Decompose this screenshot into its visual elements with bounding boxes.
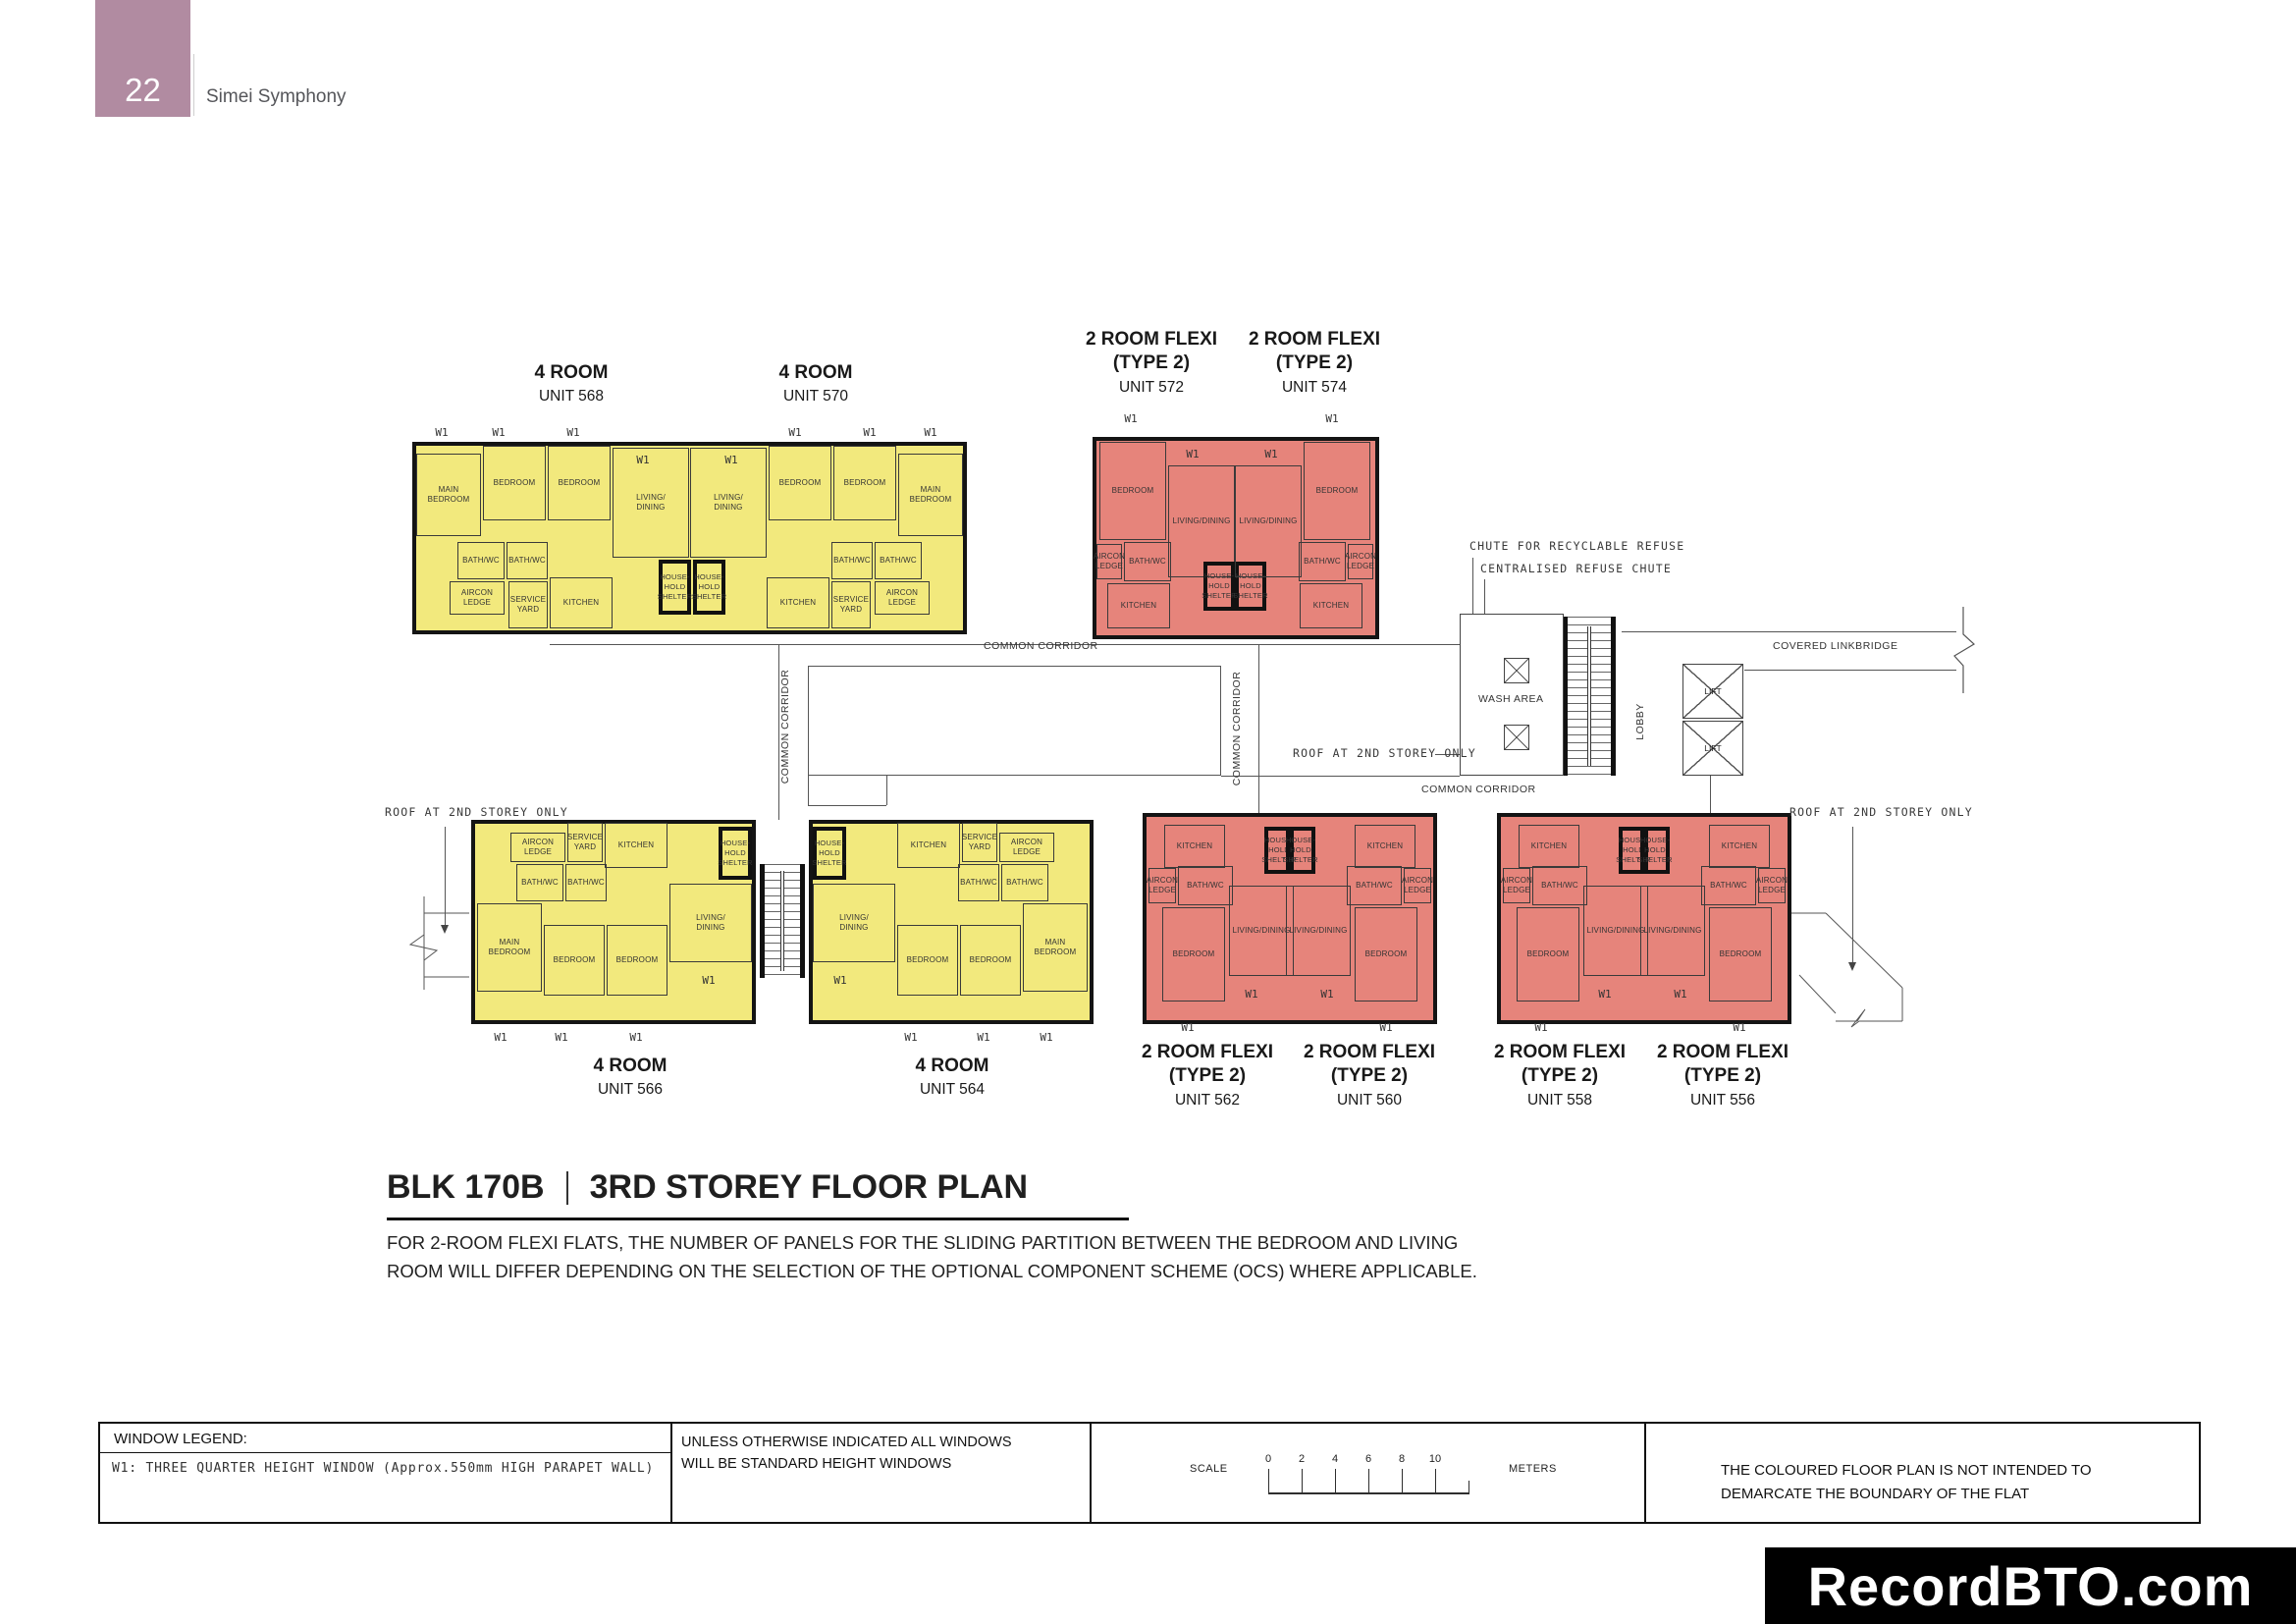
w1-window-label: W1	[555, 1031, 567, 1044]
room-label: BATH/WC	[1710, 881, 1747, 891]
room-label: BEDROOM	[779, 478, 822, 488]
title-divider	[566, 1171, 568, 1205]
room-kitchen: KITCHEN	[1355, 825, 1415, 868]
room-bedroom: BEDROOM	[1099, 442, 1166, 540]
chute-recyclable-label: CHUTE FOR RECYCLABLE REFUSE	[1469, 539, 1684, 553]
household-shelter: HOUSE-HOLDSHELTER	[659, 560, 691, 615]
room-bath-wc: BATH/WC	[457, 542, 505, 579]
title-rule	[387, 1218, 1129, 1220]
room-label: SERVICE	[510, 595, 546, 605]
w1-window-label: W1	[435, 426, 448, 439]
room-label: DINING	[696, 923, 724, 933]
room-label: LEDGE	[1758, 886, 1786, 895]
room-bedroom: BEDROOM	[483, 446, 546, 520]
room-label: BEDROOM	[1365, 949, 1408, 959]
room-label: SERVICE	[567, 833, 603, 842]
room-label: SHELTER	[1201, 591, 1236, 601]
window-legend-title: WINDOW LEGEND:	[114, 1431, 247, 1447]
room-living-dining: LIVING/DINING	[1229, 886, 1294, 976]
room-label: BATH/WC	[521, 878, 559, 888]
unit-number: UNIT 558	[1494, 1092, 1626, 1110]
room-label: HOUSE-	[694, 572, 723, 582]
stair-rail	[780, 871, 784, 971]
unit-type: (TYPE 2)	[1142, 1064, 1273, 1088]
unit-number: UNIT 562	[1142, 1092, 1273, 1110]
common-corridor-left: COMMON CORRIDOR	[779, 670, 791, 785]
room-label: KITCHEN	[618, 840, 655, 850]
room-label: LIVING/DINING	[1232, 926, 1290, 936]
w1-window-label: W1	[788, 426, 801, 439]
room-label: AIRCON	[1501, 876, 1532, 886]
unit-label-568: 4 ROOMUNIT 568	[535, 361, 609, 406]
scale-label: SCALE	[1190, 1463, 1228, 1475]
room-bedroom: BEDROOM	[960, 925, 1021, 996]
room-label: SHELTER	[1637, 855, 1672, 865]
unit-type: 2 ROOM FLEXI	[1657, 1041, 1789, 1064]
room-label: BEDROOM	[844, 478, 886, 488]
scale-tick	[1368, 1469, 1369, 1492]
room-living-dining: LIVING/DINING	[613, 448, 689, 558]
room-main-bedroom: MAINBEDROOM	[898, 454, 963, 536]
w1-window-label: W1	[1320, 988, 1333, 1001]
w1-window-label: W1	[1186, 448, 1199, 460]
room-label: HOLD	[1290, 845, 1311, 855]
room-label: KITCHEN	[780, 598, 817, 608]
common-corridor-bottom: COMMON CORRIDOR	[1421, 784, 1536, 795]
room-kitchen: KITCHEN	[767, 577, 829, 628]
unit-number: UNIT 560	[1304, 1092, 1435, 1110]
room-label: HOUSE-	[721, 839, 750, 848]
room-aircon-ledge: AIRCONLEDGE	[450, 581, 505, 615]
legend-cell-divider	[670, 1424, 672, 1522]
room-bath-wc: BATH/WC	[875, 542, 922, 579]
unit-label-558: 2 ROOM FLEXI(TYPE 2)UNIT 558	[1494, 1041, 1626, 1110]
room-label: LIVING/DINING	[1643, 926, 1701, 936]
floor-plan: MAINBEDROOMBEDROOMBEDROOMLIVING/DININGBA…	[0, 0, 2296, 1624]
wash-area: WASH AREA	[1478, 693, 1544, 705]
room-aircon-ledge: AIRCONLEDGE	[999, 833, 1054, 862]
room-label: SHELTER	[718, 858, 752, 868]
room-aircon-ledge: AIRCONLEDGE	[510, 833, 565, 862]
room-label: SHELTER	[812, 858, 846, 868]
unit-number: UNIT 570	[779, 388, 853, 406]
room-kitchen: KITCHEN	[1107, 583, 1170, 628]
staircase	[760, 864, 805, 978]
unit-number: UNIT 572	[1086, 379, 1217, 397]
plan-title: BLK 170B 3RD STOREY FLOOR PLAN	[387, 1168, 1028, 1207]
unit-label-560: 2 ROOM FLEXI(TYPE 2)UNIT 560	[1304, 1041, 1435, 1110]
staircase	[1563, 617, 1616, 776]
roof-2nd-storey-mid: ROOF AT 2ND STOREY ONLY	[1293, 746, 1476, 760]
room-label: YARD	[574, 842, 596, 852]
room-label: LIVING/DINING	[1289, 926, 1347, 936]
room-label: BEDROOM	[970, 955, 1012, 965]
courtyard-notch	[808, 776, 809, 805]
room-bath-wc: BATH/WC	[507, 542, 548, 579]
w1-window-label: W1	[629, 1031, 642, 1044]
w1-window-label: W1	[1379, 1021, 1392, 1034]
w1-window-label: W1	[977, 1031, 989, 1044]
covered-linkbridge: COVERED LINKBRIDGE	[1773, 640, 1897, 652]
room-label: LIVING/DINING	[1239, 516, 1297, 526]
linkbridge-line	[1622, 631, 1956, 632]
ocs-note-line2: ROOM WILL DIFFER DEPENDING ON THE SELECT…	[387, 1258, 1477, 1286]
room-bath-wc: BATH/WC	[1347, 866, 1402, 905]
room-service-yard: SERVICEYARD	[831, 581, 871, 628]
room-bath-wc: BATH/WC	[1299, 542, 1346, 581]
unit-type: 2 ROOM FLEXI	[1494, 1041, 1626, 1064]
lift-label: LIFT	[1704, 743, 1721, 753]
scale-tick	[1468, 1481, 1469, 1492]
lift-box: LIFT	[1682, 721, 1743, 776]
room-label: HOLD	[819, 848, 840, 858]
room-bedroom: BEDROOM	[897, 925, 958, 996]
watermark-banner: RecordBTO.com	[1765, 1547, 2296, 1624]
lift-box: LIFT	[1682, 664, 1743, 719]
unit-type: (TYPE 2)	[1249, 352, 1380, 375]
unit-number: UNIT 556	[1657, 1092, 1789, 1110]
legend-cell-divider	[1090, 1424, 1092, 1522]
room-aircon-ledge: AIRCONLEDGE	[1503, 868, 1530, 903]
room-living-dining: LIVING/DINING	[1286, 886, 1351, 976]
courtyard-outline	[808, 666, 1221, 776]
w1-window-label: W1	[1534, 1021, 1547, 1034]
room-label: BEDROOM	[1035, 947, 1077, 957]
w1-window-label: W1	[863, 426, 876, 439]
room-main-bedroom: MAINBEDROOM	[416, 454, 481, 536]
refuse-chute-box	[1504, 725, 1529, 750]
unit-type: (TYPE 2)	[1304, 1064, 1435, 1088]
room-label: LIVING/DINING	[1586, 926, 1644, 936]
room-label: BEDROOM	[1316, 486, 1359, 496]
room-label: BATH/WC	[1187, 881, 1224, 891]
room-label: LEDGE	[463, 598, 491, 608]
room-label: AIRCON	[461, 588, 493, 598]
room-label: BATH/WC	[1006, 878, 1043, 888]
room-label: YARD	[969, 842, 990, 852]
room-label: LIVING/	[696, 913, 725, 923]
w1-window-label: W1	[1733, 1021, 1745, 1034]
room-label: KITCHEN	[1313, 601, 1350, 611]
scale-unit-label: METERS	[1509, 1463, 1557, 1475]
room-label: HOLD	[665, 582, 686, 592]
unit-type: 2 ROOM FLEXI	[1249, 328, 1380, 352]
unit-label-556: 2 ROOM FLEXI(TYPE 2)UNIT 556	[1657, 1041, 1789, 1110]
scale-tick-number: 10	[1429, 1453, 1441, 1465]
room-label: HOUSE-	[815, 839, 844, 848]
w1-window-label: W1	[1124, 412, 1137, 425]
windows-note-line2: WILL BE STANDARD HEIGHT WINDOWS	[681, 1453, 1012, 1475]
room-main-bedroom: MAINBEDROOM	[477, 903, 542, 992]
room-aircon-ledge: AIRCONLEDGE	[875, 581, 930, 615]
room-label: LIVING/	[839, 913, 869, 923]
room-aircon-ledge: AIRCONLEDGE	[1096, 544, 1122, 579]
unit-type: 2 ROOM FLEXI	[1304, 1041, 1435, 1064]
room-living-dining: LIVING/DINING	[669, 884, 752, 962]
w1-window-label: W1	[1040, 1031, 1052, 1044]
room-label: BATH/WC	[960, 878, 997, 888]
room-label: HOUSE-	[1286, 836, 1315, 845]
household-shelter: HOUSE-HOLDSHELTER	[693, 560, 725, 615]
room-label: BEDROOM	[559, 478, 601, 488]
roof-2nd-storey-right: ROOF AT 2ND STOREY ONLY	[1789, 805, 1973, 819]
w1-window-label: W1	[636, 454, 649, 466]
room-label: MAIN	[500, 938, 520, 947]
unit-label-570: 4 ROOMUNIT 570	[779, 361, 853, 406]
room-label: KITCHEN	[1177, 841, 1213, 851]
scale-tick-number: 8	[1399, 1453, 1405, 1465]
room-label: LEDGE	[524, 847, 552, 857]
legend-title-rule	[100, 1452, 670, 1453]
corridor-line	[1221, 776, 1460, 777]
room-service-yard: SERVICEYARD	[567, 823, 603, 862]
room-bedroom: BEDROOM	[548, 446, 611, 520]
room-bedroom: BEDROOM	[1162, 907, 1225, 1001]
room-label: LIVING/	[714, 493, 743, 503]
household-shelter: HOUSE-HOLDSHELTER	[813, 827, 846, 880]
w1-window-label: W1	[492, 426, 505, 439]
room-label: MAIN	[1045, 938, 1066, 947]
unit-label-574: 2 ROOM FLEXI(TYPE 2)UNIT 574	[1249, 328, 1380, 397]
room-label: BATH/WC	[567, 878, 605, 888]
lobby: LOBBY	[1634, 703, 1646, 740]
unit-label-564: 4 ROOMUNIT 564	[916, 1055, 989, 1099]
room-bedroom: BEDROOM	[607, 925, 667, 996]
storey-title: 3RD STOREY FLOOR PLAN	[590, 1168, 1028, 1207]
room-label: AIRCON	[886, 588, 918, 598]
room-bedroom: BEDROOM	[544, 925, 605, 996]
unit-type: 4 ROOM	[916, 1055, 989, 1078]
room-kitchen: KITCHEN	[1709, 825, 1770, 868]
room-bedroom: BEDROOM	[1517, 907, 1579, 1001]
room-bedroom: BEDROOM	[833, 446, 896, 520]
scale-tick-number: 4	[1332, 1453, 1338, 1465]
room-label: BEDROOM	[910, 495, 952, 505]
room-label: HOUSE-	[1204, 571, 1234, 581]
room-label: KITCHEN	[911, 840, 947, 850]
room-bath-wc: BATH/WC	[516, 864, 563, 901]
household-shelter: HOUSE-HOLDSHELTER	[719, 827, 752, 880]
room-living-dining: LIVING/DINING	[1640, 886, 1705, 976]
room-label: HOLD	[724, 848, 746, 858]
room-label: BEDROOM	[428, 495, 470, 505]
room-label: BATH/WC	[880, 556, 917, 566]
room-label: LIVING/DINING	[1172, 516, 1230, 526]
room-living-dining: LIVING/DINING	[1168, 465, 1235, 577]
room-label: BATH/WC	[1356, 881, 1393, 891]
room-label: BATH/WC	[1541, 881, 1578, 891]
lift-connector-line	[1710, 776, 1711, 813]
household-shelter: HOUSE-HOLDSHELTER	[1286, 827, 1315, 874]
room-living-dining: LIVING/DINING	[1583, 886, 1648, 976]
room-label: SHELTER	[1233, 591, 1267, 601]
room-label: HOLD	[1644, 845, 1666, 855]
household-shelter: HOUSE-HOLDSHELTER	[1203, 562, 1235, 611]
room-label: BEDROOM	[1527, 949, 1570, 959]
unit-number: UNIT 574	[1249, 379, 1380, 397]
room-service-yard: SERVICEYARD	[962, 823, 997, 862]
unit-number: UNIT 568	[535, 388, 609, 406]
floor-plan-page: 22 Simei Symphony	[0, 0, 2296, 1624]
scale-tick-number: 6	[1365, 1453, 1371, 1465]
boundary-note-line2: DEMARCATE THE BOUNDARY OF THE FLAT	[1721, 1483, 2092, 1506]
room-label: BEDROOM	[1173, 949, 1215, 959]
w1-window-label: W1	[702, 974, 715, 987]
unit-type: 4 ROOM	[594, 1055, 667, 1078]
unit-type: 4 ROOM	[779, 361, 853, 385]
boundary-note: THE COLOURED FLOOR PLAN IS NOT INTENDED …	[1721, 1459, 2092, 1506]
room-kitchen: KITCHEN	[550, 577, 613, 628]
unit-label-566: 4 ROOMUNIT 566	[594, 1055, 667, 1099]
room-label: LEDGE	[1503, 886, 1530, 895]
room-label: DINING	[636, 503, 665, 513]
room-label: HOLD	[1208, 581, 1230, 591]
room-label: HOLD	[1240, 581, 1261, 591]
room-main-bedroom: MAINBEDROOM	[1023, 903, 1088, 992]
legend-cell-divider	[1644, 1424, 1646, 1522]
room-label: HOLD	[699, 582, 721, 592]
block-number: BLK 170B	[387, 1168, 545, 1207]
room-living-dining: LIVING/DINING	[813, 884, 895, 962]
room-label: BEDROOM	[554, 955, 596, 965]
room-label: LEDGE	[1148, 886, 1176, 895]
w1-window-label: W1	[1181, 1021, 1194, 1034]
courtyard-notch	[808, 805, 886, 806]
room-label: HOUSE-	[1640, 836, 1670, 845]
scale-tick	[1402, 1469, 1403, 1492]
room-label: LEDGE	[1013, 847, 1041, 857]
room-label: DINING	[839, 923, 868, 933]
room-aircon-ledge: AIRCONLEDGE	[1148, 868, 1176, 903]
room-label: BATH/WC	[462, 556, 500, 566]
common-corridor-right: COMMON CORRIDOR	[1231, 672, 1243, 786]
room-label: MAIN	[921, 485, 941, 495]
unit-type: (TYPE 2)	[1086, 352, 1217, 375]
unit-number: UNIT 564	[916, 1081, 989, 1099]
unit-label-572: 2 ROOM FLEXI(TYPE 2)UNIT 572	[1086, 328, 1217, 397]
room-label: KITCHEN	[1121, 601, 1157, 611]
room-bedroom: BEDROOM	[1709, 907, 1772, 1001]
corridor-line	[1258, 644, 1259, 813]
room-label: KITCHEN	[563, 598, 600, 608]
room-bedroom: BEDROOM	[769, 446, 831, 520]
unit-type: (TYPE 2)	[1494, 1064, 1626, 1088]
linkbridge-line	[1744, 670, 1956, 671]
room-label: BATH/WC	[833, 556, 871, 566]
w1-window-label: W1	[1245, 988, 1257, 1001]
w1-window-label: W1	[1325, 412, 1338, 425]
room-label: LEDGE	[1404, 886, 1431, 895]
household-shelter: HOUSE-HOLDSHELTER	[1640, 827, 1670, 874]
room-bedroom: BEDROOM	[1355, 907, 1417, 1001]
unit-type: 2 ROOM FLEXI	[1142, 1041, 1273, 1064]
room-service-yard: SERVICEYARD	[508, 581, 548, 628]
room-bath-wc: BATH/WC	[831, 542, 873, 579]
room-label: SHELTER	[692, 592, 726, 602]
lift-label: LIFT	[1704, 686, 1721, 696]
room-label: AIRCON	[1402, 876, 1433, 886]
scale-tick	[1435, 1469, 1436, 1492]
room-label: YARD	[517, 605, 539, 615]
w1-window-label: W1	[1674, 988, 1686, 1001]
room-label: SERVICE	[833, 595, 869, 605]
room-kitchen: KITCHEN	[1300, 583, 1362, 628]
stair-rail	[1587, 626, 1591, 767]
room-bath-wc: BATH/WC	[1001, 864, 1048, 901]
w1-window-label: W1	[1598, 988, 1611, 1001]
room-label: LEDGE	[1347, 562, 1374, 571]
room-label: YARD	[840, 605, 862, 615]
room-aircon-ledge: AIRCONLEDGE	[1404, 868, 1431, 903]
w1-window-label: W1	[494, 1031, 507, 1044]
unit-type: 4 ROOM	[535, 361, 609, 385]
roof-2nd-storey-left: ROOF AT 2ND STOREY ONLY	[385, 805, 568, 819]
room-bath-wc: BATH/WC	[1124, 542, 1171, 581]
courtyard-notch	[886, 776, 887, 805]
room-label: BATH/WC	[1129, 557, 1166, 567]
room-aircon-ledge: AIRCONLEDGE	[1758, 868, 1786, 903]
room-bath-wc: BATH/WC	[958, 864, 999, 901]
ocs-note-line1: FOR 2-ROOM FLEXI FLATS, THE NUMBER OF PA…	[387, 1229, 1477, 1258]
room-label: MAIN	[439, 485, 459, 495]
unit-type: (TYPE 2)	[1657, 1064, 1789, 1088]
room-label: LEDGE	[1095, 562, 1123, 571]
unit-number: UNIT 566	[594, 1081, 667, 1099]
w1-window-label: W1	[724, 454, 737, 466]
room-label: BEDROOM	[494, 478, 536, 488]
w1-window-label: W1	[566, 426, 579, 439]
room-label: DINING	[714, 503, 742, 513]
room-label: KITCHEN	[1367, 841, 1404, 851]
room-label: AIRCON	[1756, 876, 1788, 886]
w1-window-label: W1	[904, 1031, 917, 1044]
windows-note-line1: UNLESS OTHERWISE INDICATED ALL WINDOWS	[681, 1432, 1012, 1453]
room-kitchen: KITCHEN	[605, 823, 667, 868]
refuse-chute-box	[1504, 658, 1529, 683]
windows-note: UNLESS OTHERWISE INDICATED ALL WINDOWS W…	[681, 1432, 1012, 1476]
room-label: SHELTER	[658, 592, 692, 602]
room-kitchen: KITCHEN	[897, 823, 960, 868]
room-kitchen: KITCHEN	[1164, 825, 1225, 868]
room-label: AIRCON	[1011, 838, 1042, 847]
room-bath-wc: BATH/WC	[565, 864, 607, 901]
room-label: HOUSE-	[660, 572, 689, 582]
room-label: KITCHEN	[1531, 841, 1568, 851]
room-label: SERVICE	[962, 833, 997, 842]
room-label: BEDROOM	[1720, 949, 1762, 959]
w1-window-label: W1	[924, 426, 936, 439]
w1-window-label: W1	[833, 974, 846, 987]
window-legend-item: W1: THREE QUARTER HEIGHT WINDOW (Approx.…	[112, 1461, 654, 1476]
scale-tick	[1302, 1469, 1303, 1492]
unit-type: 2 ROOM FLEXI	[1086, 328, 1217, 352]
room-bath-wc: BATH/WC	[1701, 866, 1756, 905]
room-label: AIRCON	[1094, 552, 1125, 562]
room-bath-wc: BATH/WC	[1532, 866, 1587, 905]
room-kitchen: KITCHEN	[1519, 825, 1579, 868]
room-label: AIRCON	[1345, 552, 1376, 562]
room-bath-wc: BATH/WC	[1178, 866, 1233, 905]
room-label: BEDROOM	[616, 955, 659, 965]
room-label: KITCHEN	[1722, 841, 1758, 851]
legend-table: WINDOW LEGEND: W1: THREE QUARTER HEIGHT …	[98, 1422, 2201, 1524]
room-label: LEDGE	[888, 598, 916, 608]
ocs-note: FOR 2-ROOM FLEXI FLATS, THE NUMBER OF PA…	[387, 1229, 1477, 1285]
scale-tick	[1335, 1469, 1336, 1492]
centralised-chute-label: CENTRALISED REFUSE CHUTE	[1480, 562, 1672, 575]
unit-label-562: 2 ROOM FLEXI(TYPE 2)UNIT 562	[1142, 1041, 1273, 1110]
scale-tick-number: 0	[1265, 1453, 1271, 1465]
